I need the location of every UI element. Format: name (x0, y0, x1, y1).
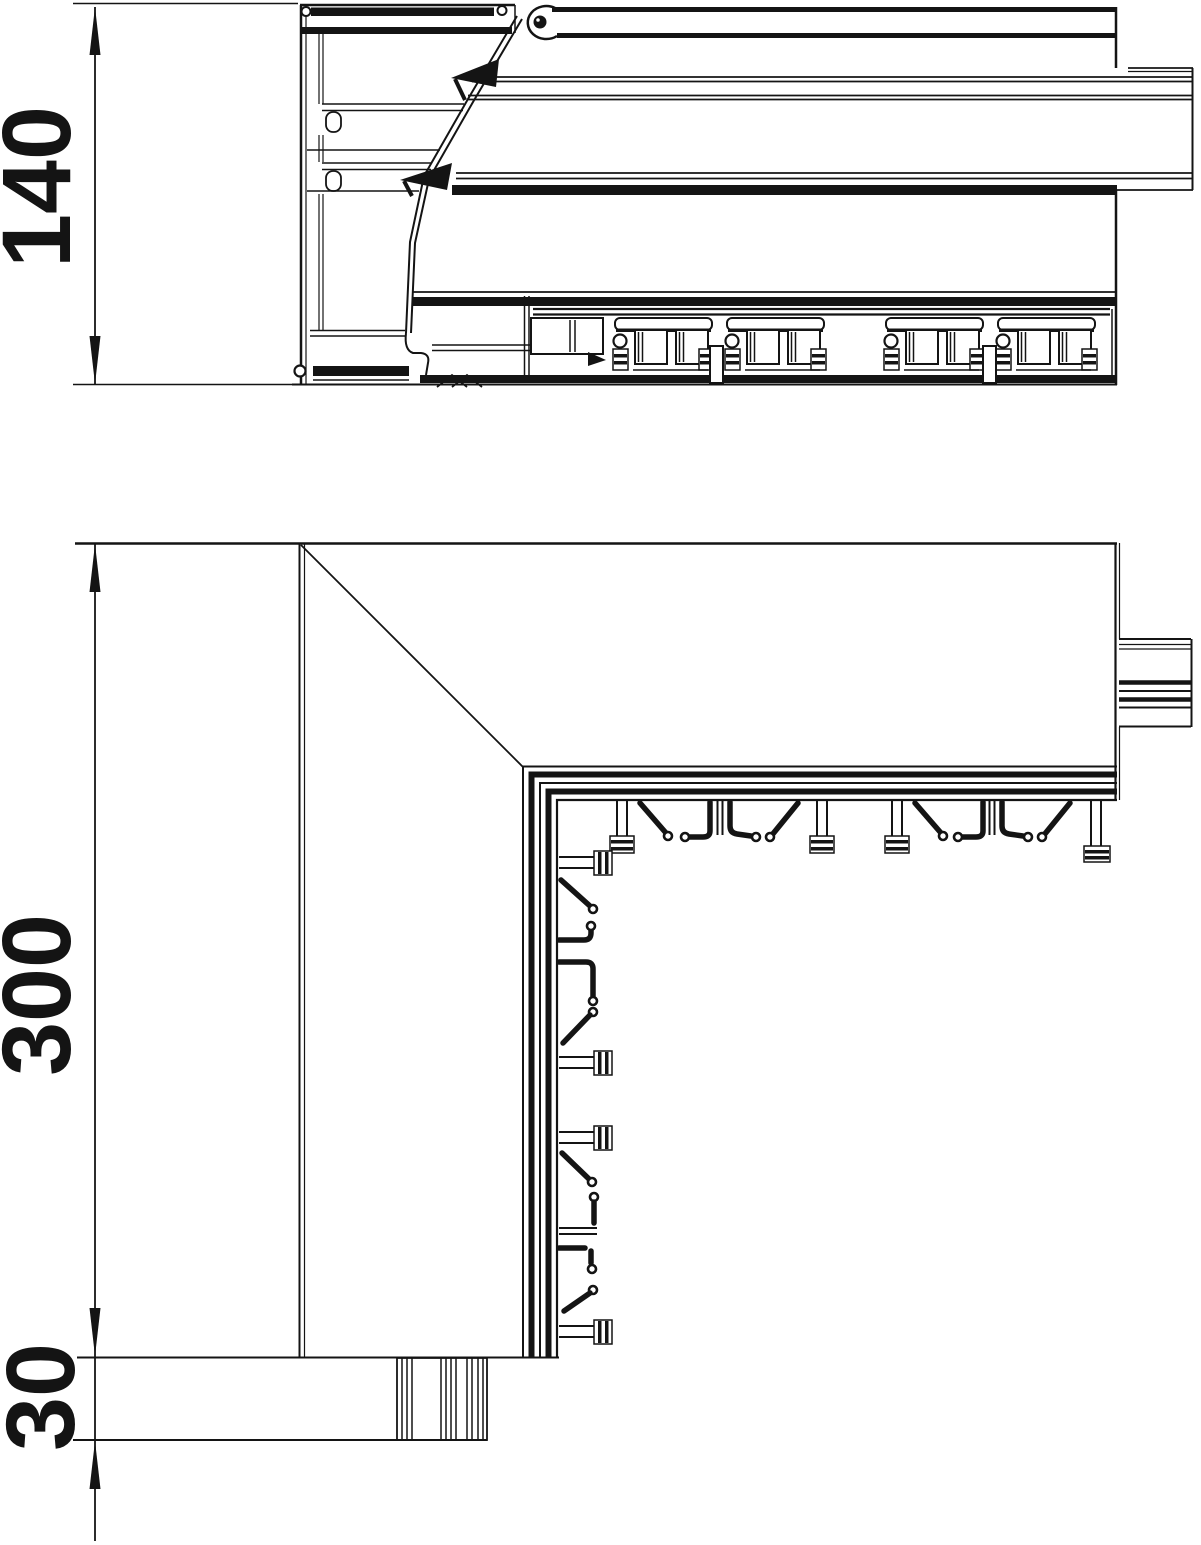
shelf-hook-icon (326, 171, 341, 191)
dimension-offset: 30 (0, 1343, 101, 1489)
drawing-canvas: 140 (0, 0, 1201, 1545)
lid-profile (528, 6, 1116, 68)
technical-drawing: 140 (0, 0, 1201, 1545)
channel-separator-lines (412, 77, 1193, 306)
clip-bar-foot (885, 801, 909, 853)
clip-tip-icon (587, 922, 595, 930)
arrowhead-up-icon (90, 7, 101, 55)
shelf-hook-icon (326, 112, 341, 132)
retainer-clips-horizontal (610, 801, 1110, 862)
left-wall-profile (301, 5, 323, 385)
clamp-module (884, 318, 985, 370)
clip-tbar-cap (559, 1051, 612, 1075)
bottom-end-cap (73, 1358, 559, 1441)
screw-hole-icon (498, 6, 507, 15)
clip-tbar-cap (559, 851, 612, 875)
plan-view: 300 30 (0, 543, 1193, 1541)
partition-foot (406, 333, 429, 375)
arrowhead-up-icon (90, 544, 101, 592)
clip-bar-foot-large (1084, 801, 1110, 862)
dimension-height: 140 (0, 4, 300, 385)
foot-hole-icon (295, 366, 306, 377)
arrowhead-down-icon (90, 336, 101, 384)
clip-tip-icon (752, 833, 760, 841)
clip-tip-icon (589, 905, 597, 913)
dimension-height-label: 140 (0, 106, 91, 268)
cable-clamp-strip (525, 296, 1113, 383)
screw-hole-icon (302, 7, 311, 16)
right-mounting-rail (1116, 68, 1193, 385)
clamp-left-unit (531, 318, 606, 366)
clip-tip-icon (766, 833, 774, 841)
clamp-tongue (983, 346, 996, 383)
clamp-tongue (710, 346, 723, 383)
divider-partition (400, 16, 522, 375)
clip-tip-icon (1024, 833, 1032, 841)
clip-tbar-cap (559, 1320, 612, 1344)
clip-tbar-cap (559, 1126, 612, 1150)
clip-tip-icon (589, 997, 597, 1005)
dimension-offset-label: 30 (0, 1343, 95, 1451)
clamp-module (725, 318, 826, 370)
miter-diagonal (301, 545, 523, 767)
dimension-length-label: 300 (0, 914, 91, 1076)
clip-tip-icon (1038, 833, 1046, 841)
top-cover-strip (300, 5, 515, 34)
clip-bar-foot (610, 801, 634, 853)
clip-tip-icon (681, 833, 689, 841)
side-coupler (1119, 639, 1193, 727)
plan-outline (75, 543, 1120, 1357)
clamp-module (996, 318, 1097, 370)
clip-tip-icon (588, 1265, 596, 1273)
retainer-clips-vertical (559, 851, 612, 1344)
clamp-module (613, 318, 714, 370)
cross-section-view (292, 5, 1193, 387)
clip-tip-icon (954, 833, 962, 841)
clip-tip-icon (588, 1178, 596, 1186)
clip-bar-foot (810, 801, 834, 853)
clip-tip-icon (939, 832, 947, 840)
clip-tip-icon (664, 832, 672, 840)
